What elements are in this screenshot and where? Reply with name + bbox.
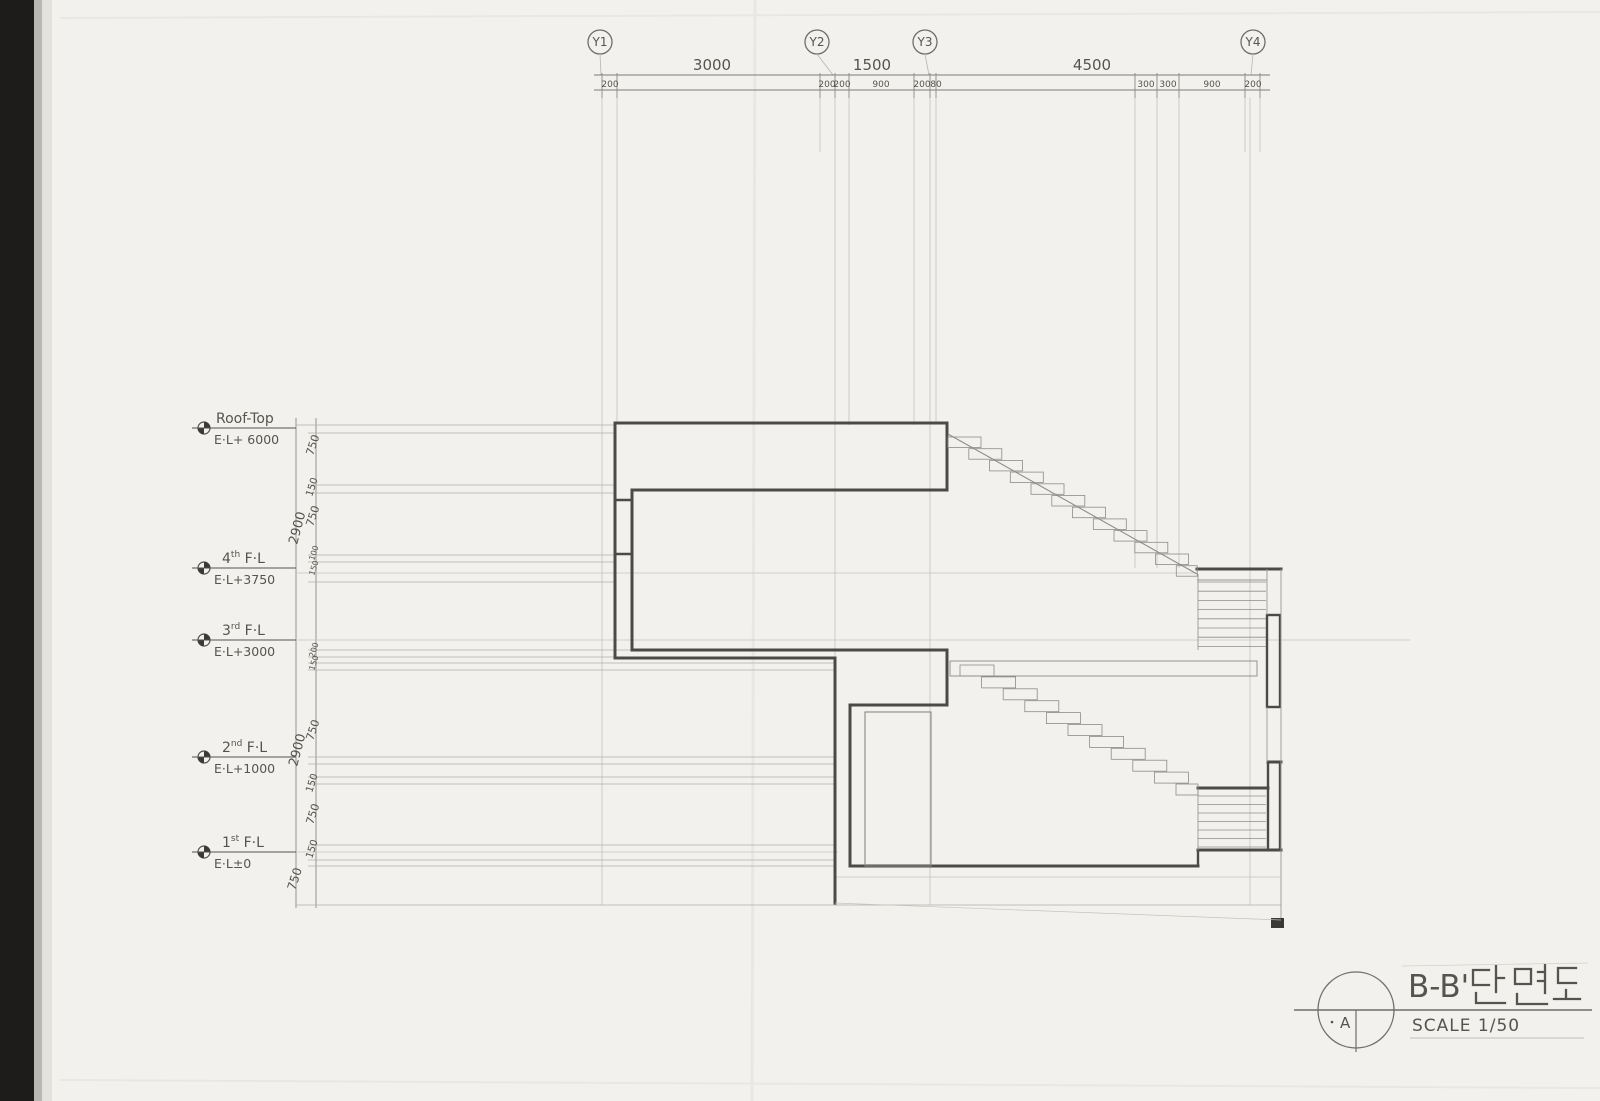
dim-sub: 900 [872,80,889,90]
lower-room-lining [865,712,931,866]
grid-bubble-label: Y2 [809,35,825,49]
dim-sub: 300 [1137,80,1154,90]
dim-span: 1500 [853,56,891,74]
level-elevation: E·L+1000 [214,761,275,776]
drawing-title-hangul [1473,965,1580,1004]
scale-label: SCALE 1/50 [1412,1016,1520,1036]
grid-bubble-label: Y1 [592,35,608,49]
vdim: 150 [304,838,320,860]
section-drawing: Y1 Y2 Y3 Y4 3000 1500 4500 [0,0,1600,1101]
scan-edge [0,0,52,1101]
drawing-sheet: Y1 Y2 Y3 Y4 3000 1500 4500 [0,0,1600,1101]
right-wall-upper [1267,615,1280,707]
detail-reference-label: A [1340,1014,1351,1032]
level-elevation: E·L+ 6000 [214,432,279,447]
level-name: 1st F·L [222,834,264,851]
vdim: 100 [307,544,320,561]
grid-bubble-label: Y4 [1245,35,1261,49]
vdim: 150 [304,476,320,498]
drawing-title-latin: B-B' [1408,969,1469,1005]
upper-landing-hatch [1198,582,1266,646]
vdim: 750 [303,433,322,457]
title-block: A B-B' SCALE 1/50 [1294,963,1592,1052]
dim-sub: 300 [1159,80,1176,90]
dim-sub: 200 [833,80,850,90]
upper-stair-flight [948,434,1197,576]
grid-bubble-label: Y3 [917,35,933,49]
vdim: 2900 [286,732,309,768]
dim-sub: 900 [1203,80,1220,90]
vdim: 150 [304,772,320,794]
level-elevation: E·L±0 [214,856,251,871]
dim-span: 3000 [693,56,731,74]
level-guide-lines [296,425,1410,905]
lower-stair-flight [960,665,1198,795]
dim-sub: 80 [930,80,942,90]
grid-dimension-header: Y1 Y2 Y3 Y4 3000 1500 4500 [588,30,1270,905]
vdim: 750 [285,866,305,892]
level-elevation: E·L+3750 [214,572,275,587]
vdim: 2900 [286,510,309,546]
lower-landing-hatch [1198,796,1266,847]
level-elevation: E·L+3000 [214,644,275,659]
right-wall-lower [1268,762,1280,850]
vdim: 750 [303,802,322,826]
level-name: Roof-Top [216,411,274,427]
dim-sub: 200 [913,80,930,90]
level-name: 2nd F·L [222,739,267,756]
paper-creases [60,0,1600,1101]
mid-slab-band [950,661,1257,676]
level-labels: Roof-Top 4th F·L 3rd F·L 2nd F·L 1st F·L… [192,411,296,871]
dim-sub: 200 [601,80,618,90]
level-name: 3rd F·L [222,622,265,639]
dim-sub: 200 [1244,80,1261,90]
level-name: 4th F·L [222,550,265,567]
dim-span: 4500 [1073,56,1111,74]
